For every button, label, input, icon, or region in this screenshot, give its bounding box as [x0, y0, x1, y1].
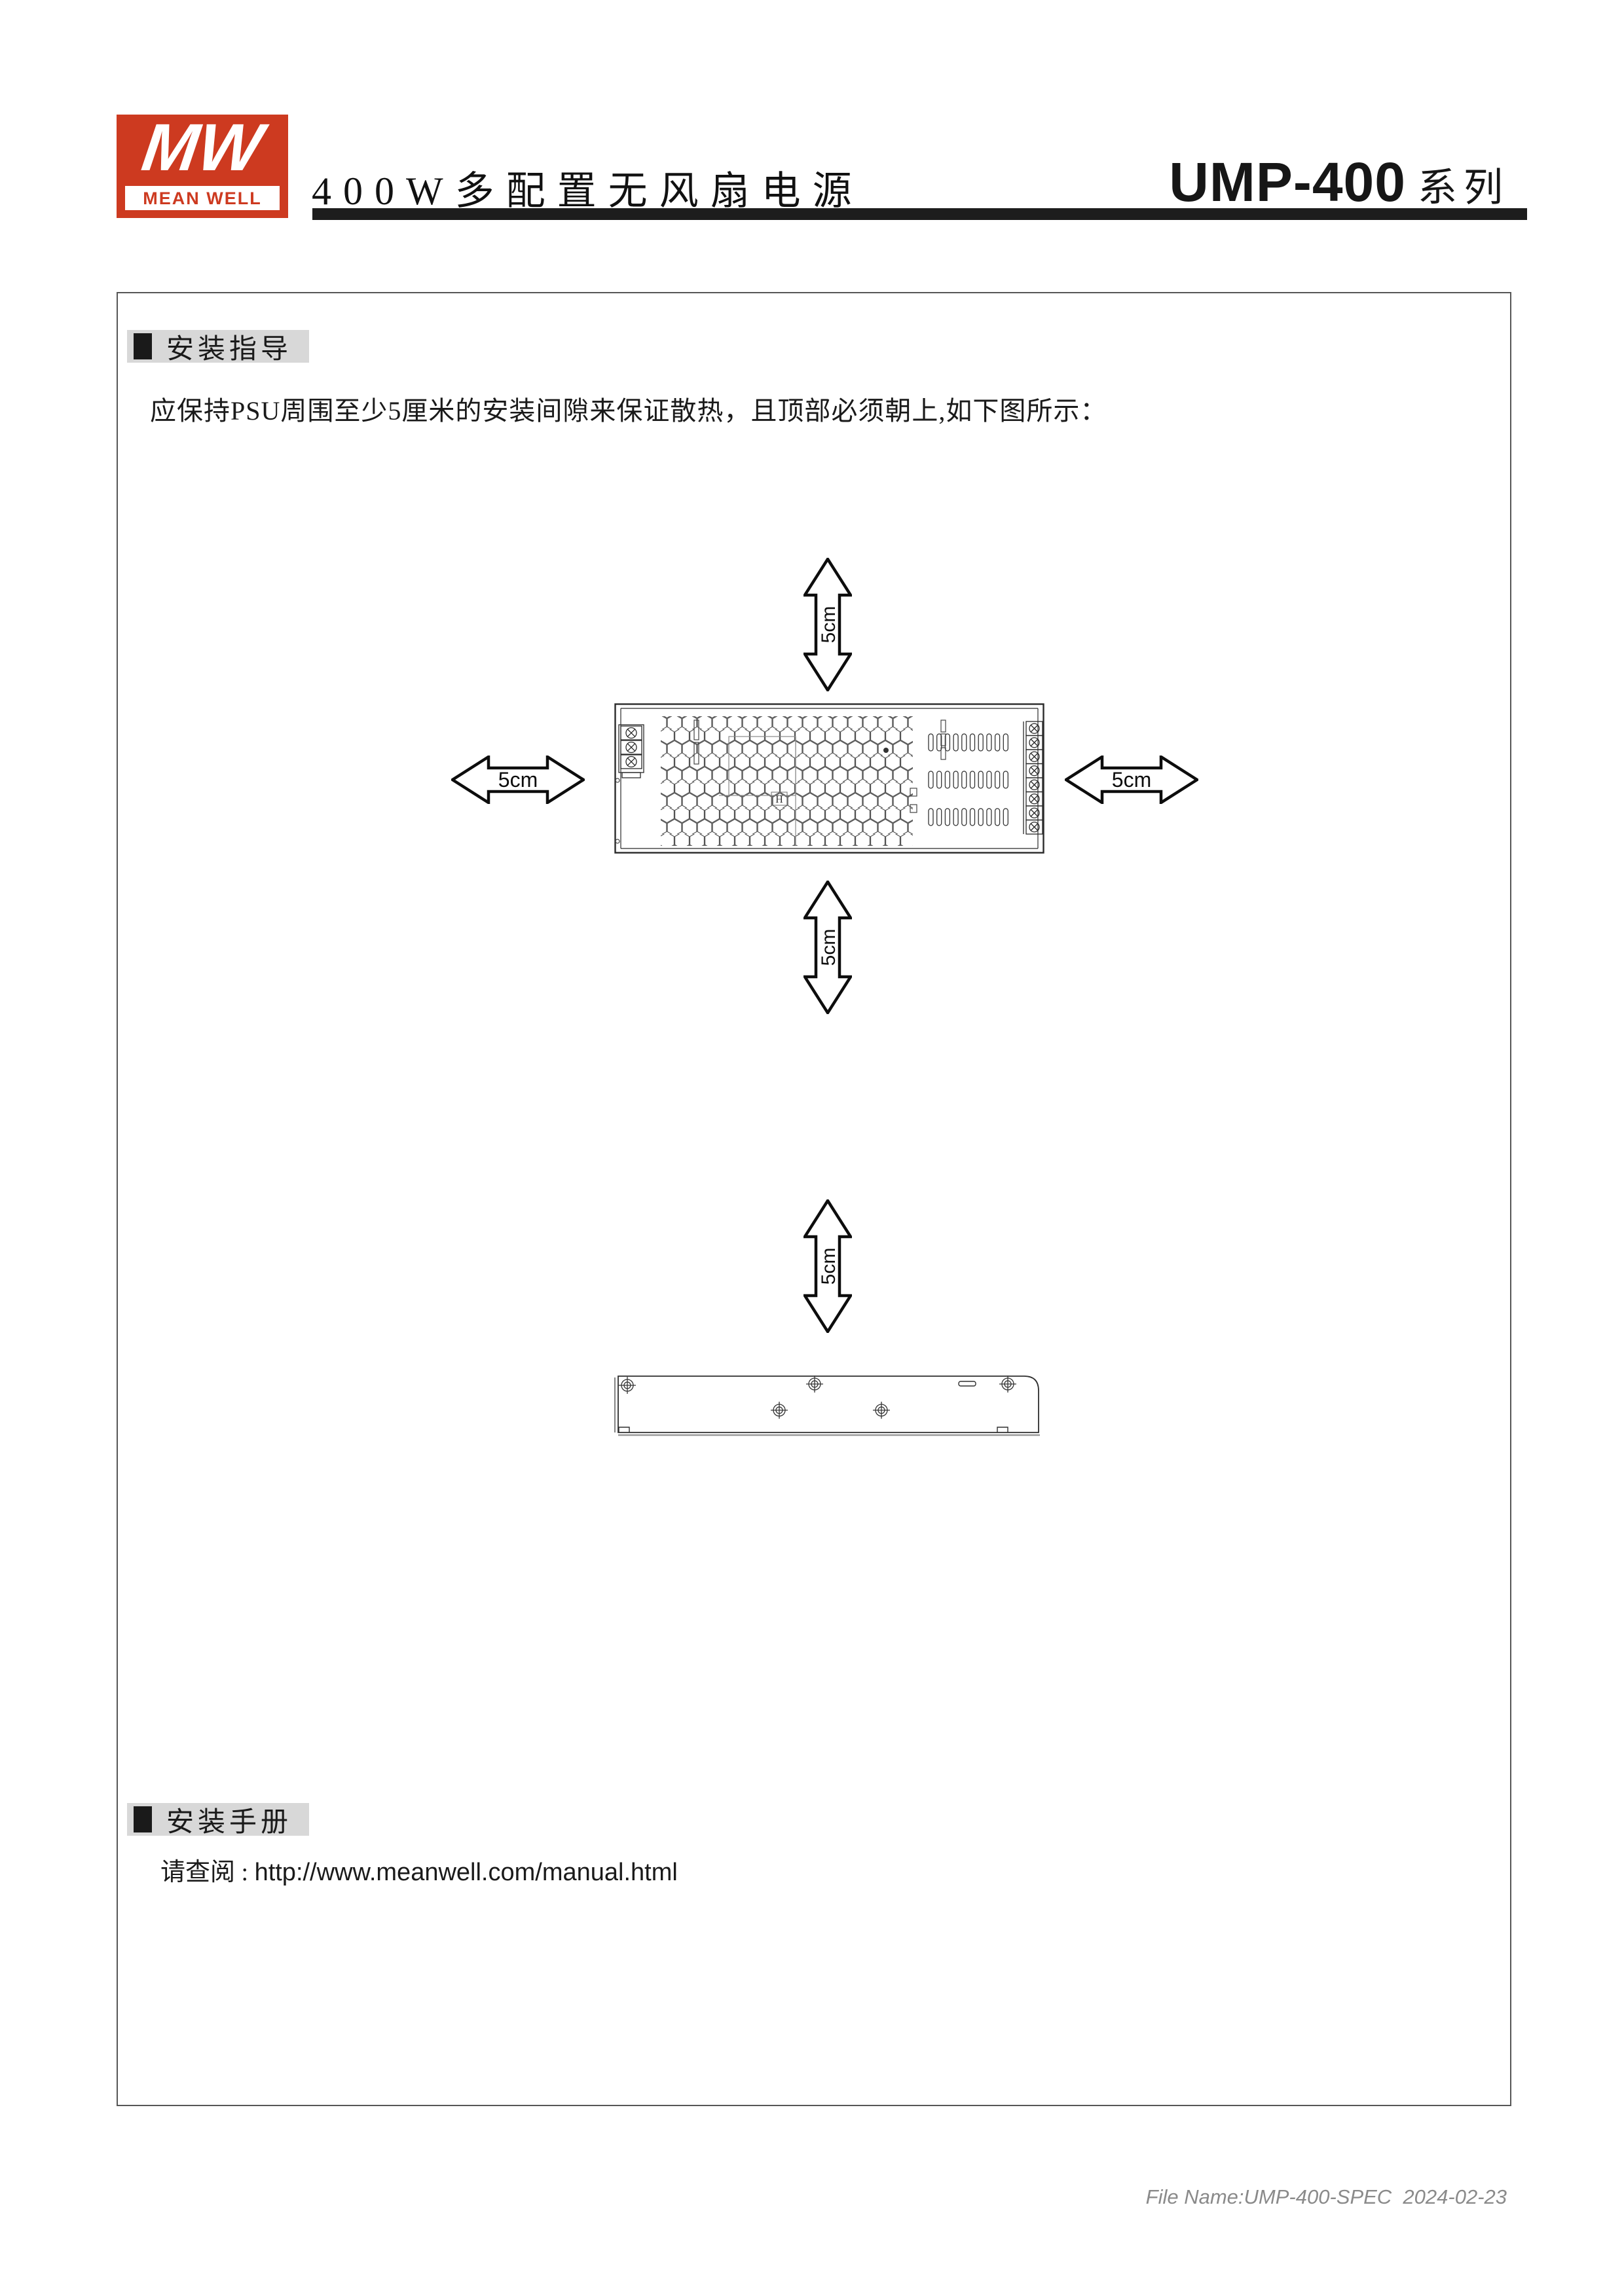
section-install-guide-title: 安装指导: [166, 327, 292, 367]
datasheet-page: MW MEAN WELL 400W多配置无风扇电源 UMP-400 系列 安装指…: [0, 0, 1624, 2296]
psu-h-marking: H: [775, 794, 783, 805]
series-model: UMP-400: [1169, 151, 1406, 214]
clearance-arrow-side: 5cm: [803, 1199, 852, 1333]
psu-top-view-drawing: H: [614, 703, 1044, 854]
page-title: 400W多配置无风扇电源: [312, 159, 864, 216]
clearance-label-left: 5cm: [498, 768, 538, 792]
clearance-label-right: 5cm: [1112, 768, 1151, 792]
psu-side-view-drawing: [613, 1375, 1043, 1440]
clearance-label-side: 5cm: [818, 1248, 840, 1285]
clearance-arrow-right: 5cm: [1065, 756, 1198, 804]
content-box: 安装指导 应保持PSU周围至少5厘米的安装间隙来保证散热，且顶部必须朝上,如下图…: [117, 292, 1511, 2106]
footer-file-info: File Name:UMP-400-SPEC 2024-02-23: [1146, 2185, 1507, 2209]
section-install-manual-title: 安装手册: [166, 1800, 292, 1840]
clearance-arrow-bottom: 5cm: [803, 881, 852, 1014]
manual-note: 请查阅 : http://www.meanwell.com/manual.htm…: [160, 1851, 678, 1887]
logo-mw-text: MW: [111, 112, 293, 183]
header-divider-rule: [312, 208, 1527, 220]
series-title: UMP-400 系列: [1169, 151, 1509, 214]
clearance-arrow-left: 5cm: [451, 756, 585, 804]
section-marker-icon: [134, 1806, 152, 1832]
clearance-label-bottom: 5cm: [818, 929, 840, 966]
section-marker-icon: [134, 333, 152, 359]
meanwell-logo: MW MEAN WELL: [117, 115, 288, 218]
clearance-arrow-top: 5cm: [803, 558, 852, 691]
manual-url-link[interactable]: http://www.meanwell.com/manual.html: [255, 1859, 678, 1886]
section-install-guide-header: 安装指导: [127, 330, 309, 363]
logo-brand-text: MEAN WELL: [125, 186, 280, 210]
clearance-label-top: 5cm: [818, 606, 840, 644]
section-install-manual-header: 安装手册: [127, 1803, 309, 1836]
manual-note-prefix: 请查阅 :: [160, 1859, 255, 1886]
series-suffix: 系列: [1418, 156, 1509, 213]
install-guide-text: 应保持PSU周围至少5厘米的安装间隙来保证散热，且顶部必须朝上,如下图所示：: [150, 390, 1107, 428]
led-indicator-dot: [883, 748, 889, 753]
